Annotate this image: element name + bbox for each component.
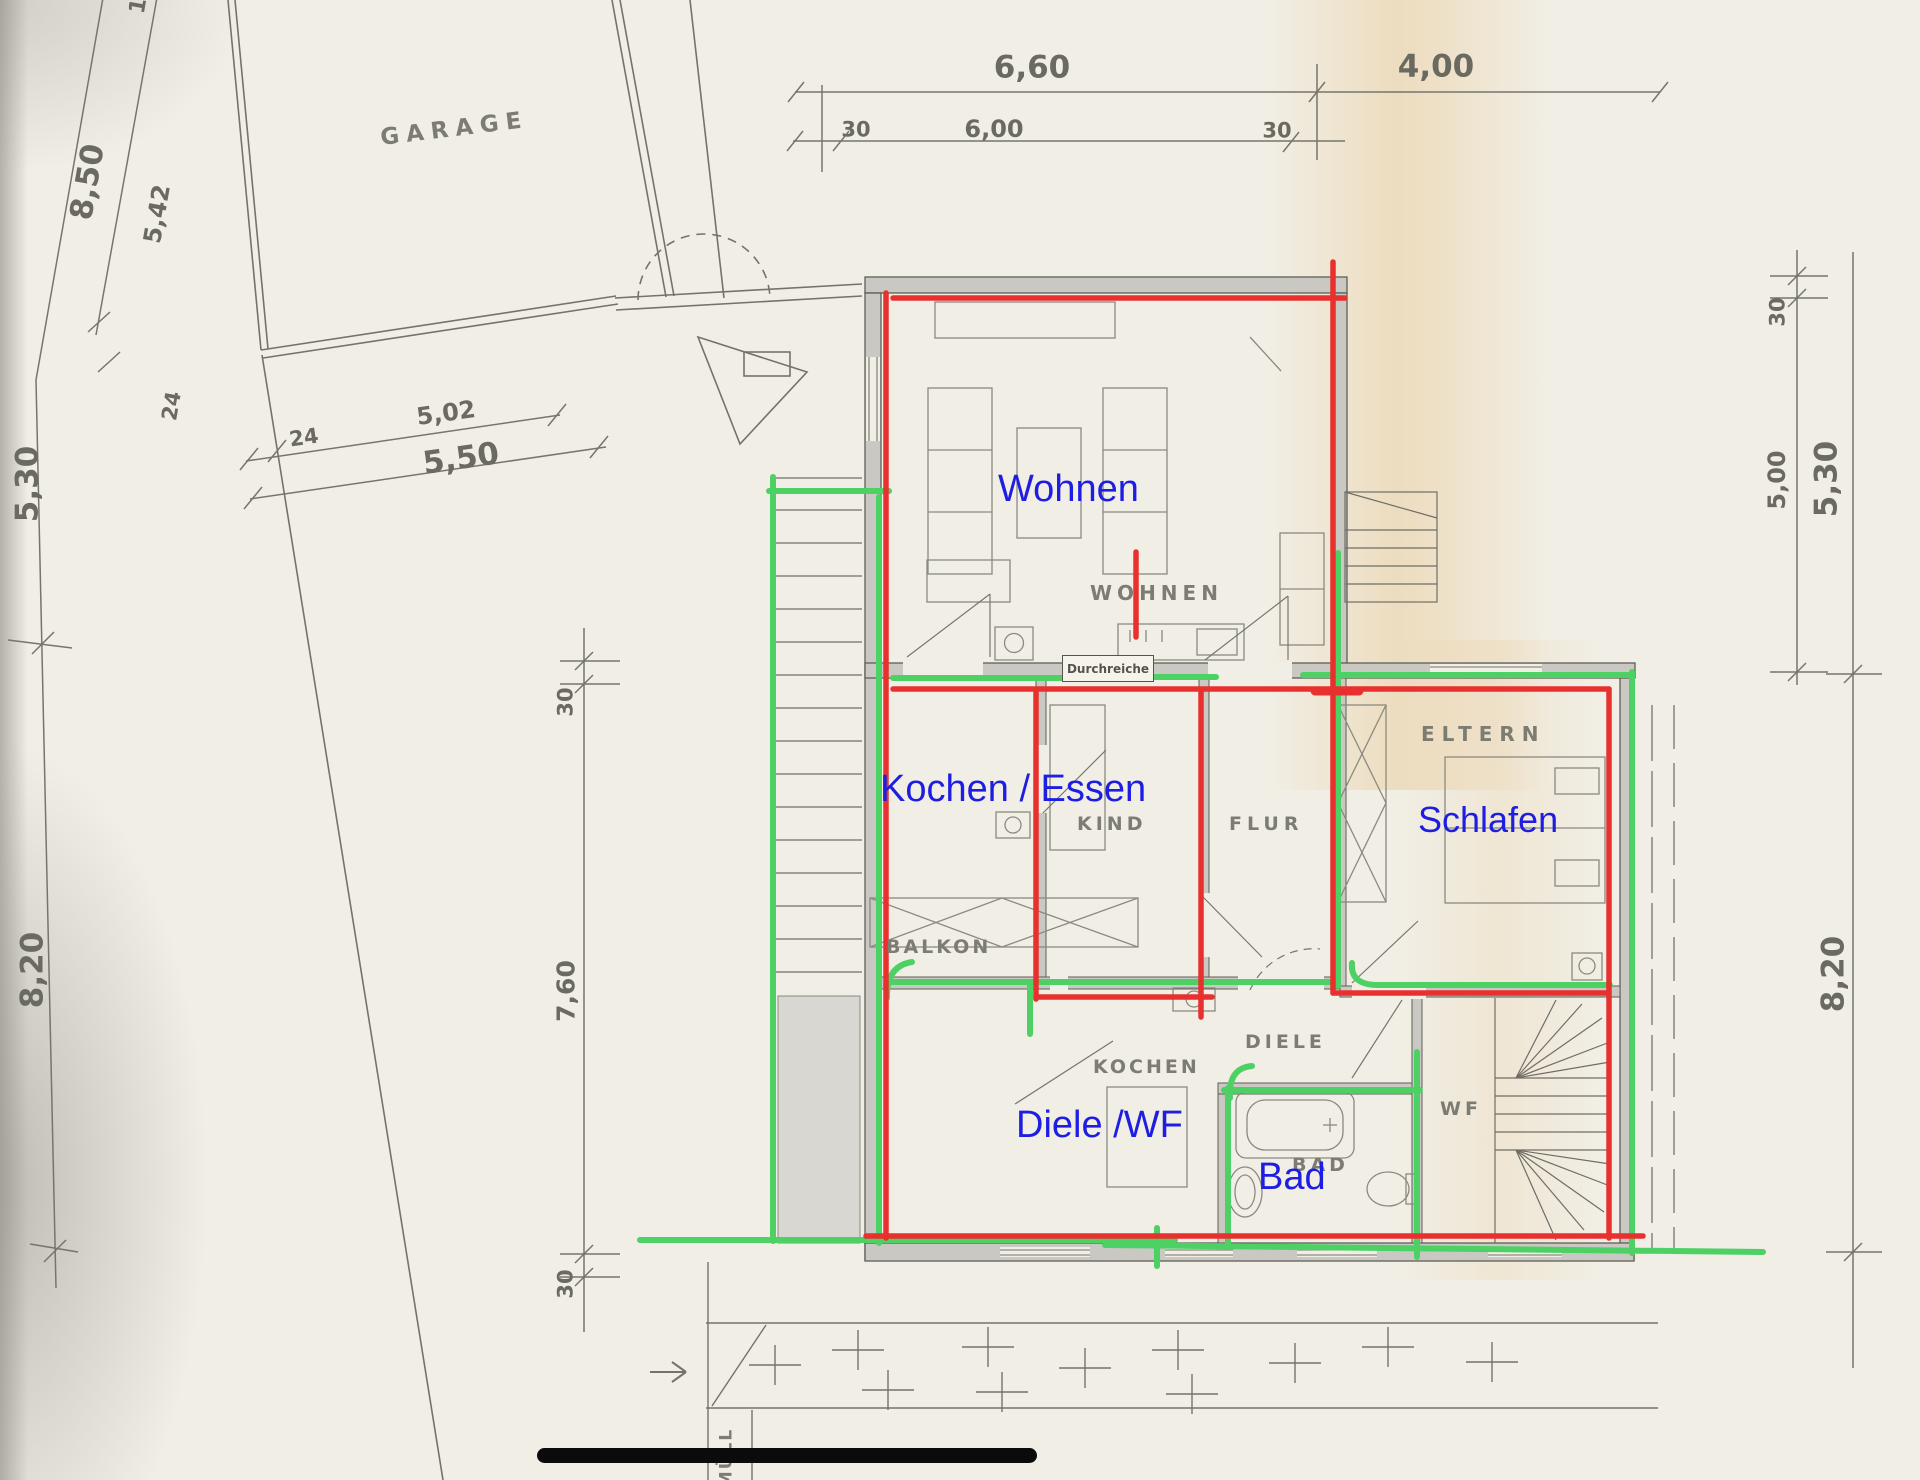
right-terrace-lines [1652,705,1674,1250]
dim-top-adjacent: 4,00 [1398,52,1475,83]
dim-top-clear: 6,00 [964,117,1023,141]
room-label-kind: KIND [1077,815,1146,834]
site-boundary-lines [228,0,862,1480]
black-marker-bar [537,1448,1037,1463]
dim-left-lower: 8,20 [18,932,49,1009]
winder-staircase [1495,998,1610,1243]
dim-innerleft-clear: 7,60 [554,960,579,1022]
section-arrow [650,1362,686,1382]
room-label-flur: FLUR [1229,815,1303,834]
annotation-kochen-essen: Kochen / Essen [880,770,1146,808]
green-schlafen-bottom [1352,963,1610,985]
dim-right-wall-top: 30 [1768,297,1789,326]
annotation-bad: Bad [1258,1158,1326,1196]
annotation-diele-wf: Diele /WF [1016,1106,1183,1144]
room-label-kochen: KOCHEN [1093,1058,1200,1077]
room-label-balkon: BALKON [886,938,991,957]
dim-left-upper: 5,30 [13,446,44,523]
exterior-stairs-upper-right [1345,492,1437,602]
room-label-wohnen: WOHNEN [1090,583,1223,603]
dim-garage-wall: 24 [159,390,185,422]
dim-belowgarage-wall: 24 [288,426,320,451]
dim-innerleft-wall-bottom: 30 [556,1269,577,1298]
dim-top-total: 6,60 [994,53,1071,84]
durchreiche-label: Durchreiche [1067,662,1149,676]
annotation-wohnen: Wohnen [998,470,1139,508]
room-label-diele: DIELE [1245,1033,1326,1052]
floorplan-scan: Durchreiche GARAGE WOHNEN KIND FLUR ELTE… [0,0,1920,1480]
dim-right-total: 5,30 [1812,441,1843,518]
durchreiche-label-box: Durchreiche [1062,655,1154,682]
exterior-stairs-left [772,478,862,1243]
room-label-eltern: ELTERN [1421,724,1546,744]
terrace-hatch-crosses [749,1327,1518,1414]
room-label-wf: WF [1440,1100,1482,1119]
dim-right-lower: 8,20 [1819,936,1850,1013]
annotation-schlafen: Schlafen [1418,802,1558,838]
dim-top-left-wall: 30 [841,120,870,141]
dim-innerleft-wall-top: 30 [556,687,577,716]
dim-top-right-wall: 30 [1262,121,1291,142]
dim-right-clear: 5,00 [1765,450,1789,509]
